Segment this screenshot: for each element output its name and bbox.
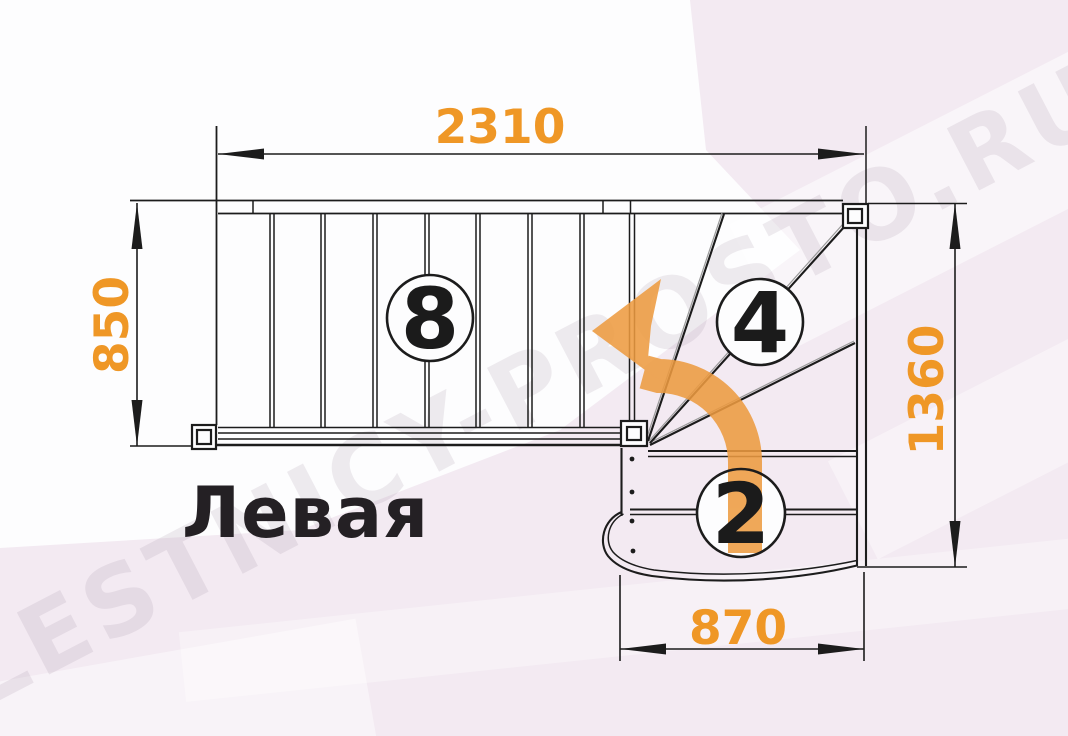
dimension-top-label: 2310 [435,100,566,155]
dimension-arrow [132,203,143,249]
dimension-bottom-label: 870 [689,601,787,656]
dimension-arrow [818,644,864,655]
dimension-arrow [950,203,961,249]
bottom-flight-count: 2 [712,465,770,563]
dimension-arrow [218,149,264,160]
stair-plan-drawing: LESTNICY-PROSTO.RU [0,0,1068,736]
dimension-arrow [950,521,961,567]
straight-flight-count: 8 [401,270,459,368]
dimension-left-label: 850 [85,276,140,374]
dimension-arrow [620,644,666,655]
dimension-arrow [818,149,864,160]
plan-title: Левая [182,472,429,554]
stair-plan-svg: 8 4 2 [0,0,1068,736]
dimension-arrow [132,400,143,446]
dimension-right-label: 1360 [900,325,955,456]
winder-count: 4 [731,274,789,372]
